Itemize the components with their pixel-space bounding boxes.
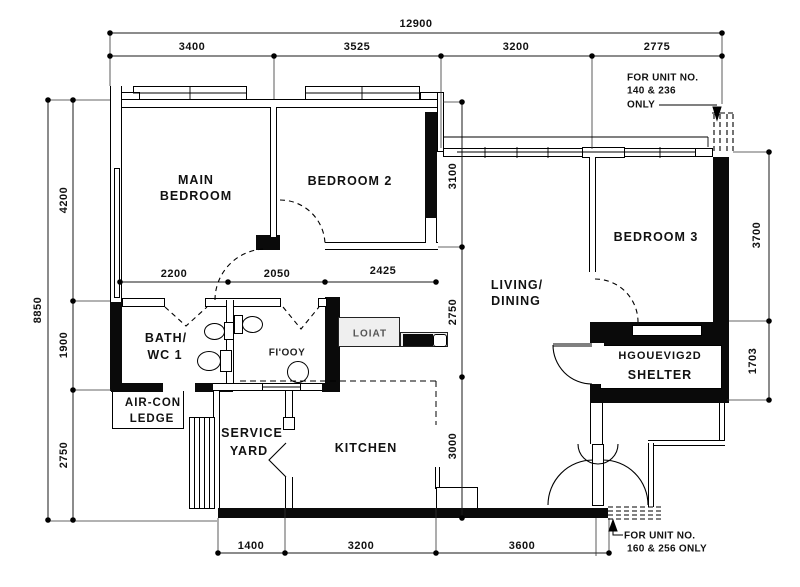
room-bedroom2: BEDROOM 2: [308, 174, 393, 188]
note-top-line2: 140 & 236: [627, 86, 676, 97]
room-main-bedroom-line1: MAIN: [178, 173, 214, 187]
dim-bottom-3: 3600: [509, 540, 535, 552]
room-living-line1: LIVING/: [491, 278, 543, 292]
dim-left-3: 2750: [58, 442, 70, 468]
dim-overall-height: 8850: [32, 297, 44, 323]
dim-left-1: 4200: [58, 187, 70, 213]
dim-left-2: 1900: [58, 332, 70, 358]
room-shelter-line1: HGOUEVIG2D: [618, 350, 701, 362]
dim-inner-row-3: 2425: [370, 265, 396, 277]
dim-top-2: 3525: [344, 41, 370, 53]
room-aircon-line2: LEDGE: [130, 413, 175, 425]
dim-top-4: 2775: [644, 41, 670, 53]
room-shelter-line2: SHELTER: [628, 368, 692, 382]
dim-overall-width: 12900: [399, 18, 432, 30]
room-bath2-garbled-label: FI'OOY: [269, 348, 306, 359]
room-service-yard-line1: SERVICE: [221, 426, 283, 440]
note-bottom-line2: 160 & 256 ONLY: [627, 544, 707, 555]
dim-right-1: 3700: [751, 222, 763, 248]
dim-inner-row-2: 2050: [264, 268, 290, 280]
note-top-line1: FOR UNIT NO.: [627, 73, 698, 84]
note-top-line3: ONLY: [627, 100, 655, 111]
note-bottom-line1: FOR UNIT NO.: [624, 531, 695, 542]
dim-inner-col-1: 3100: [447, 163, 459, 189]
room-bath1-line1: BATH/: [145, 331, 187, 345]
counter-garbled-tag: LOIAT: [353, 329, 387, 340]
dim-bottom-2: 3200: [348, 540, 374, 552]
room-service-yard-line2: YARD: [230, 444, 268, 458]
dim-bottom-1: 1400: [238, 540, 264, 552]
dim-top-3: 3200: [503, 41, 529, 53]
room-bedroom3: BEDROOM 3: [614, 230, 699, 244]
floor-plan: 12900 3400 3525 3200 2775 8850 4200 1900…: [0, 0, 800, 587]
plan-linework: [0, 0, 800, 587]
dim-inner-col-2: 2750: [447, 299, 459, 325]
room-living-line2: DINING: [491, 294, 541, 308]
dim-inner-col-3: 3000: [447, 433, 459, 459]
room-bath1-line2: WC 1: [147, 348, 182, 362]
dim-right-2: 1703: [747, 348, 759, 374]
dim-top-1: 3400: [179, 41, 205, 53]
dim-inner-row-1: 2200: [161, 268, 187, 280]
room-aircon-line1: AIR-CON: [125, 397, 181, 409]
room-main-bedroom-line2: BEDROOM: [160, 189, 232, 203]
room-kitchen: KITCHEN: [335, 441, 398, 455]
